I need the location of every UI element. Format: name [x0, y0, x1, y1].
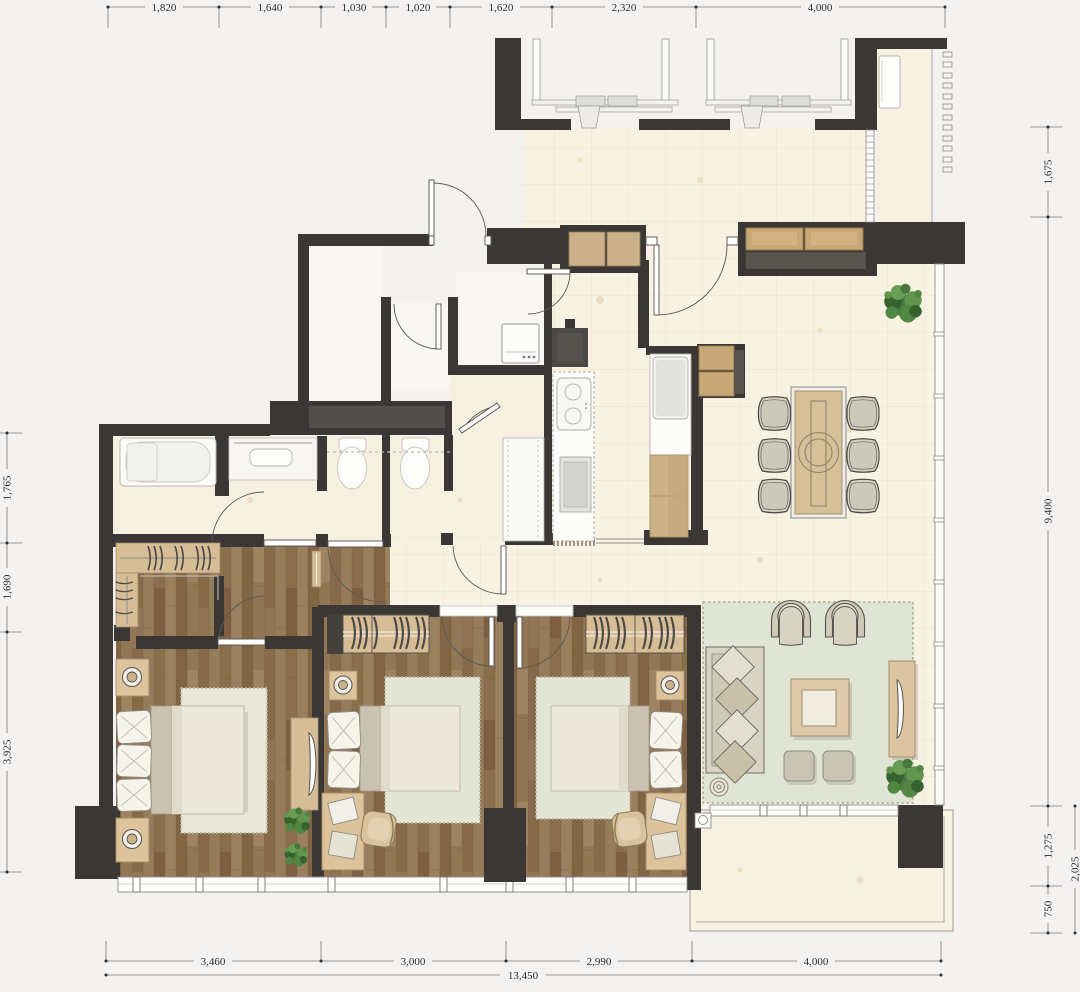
svg-text:2,990: 2,990	[587, 956, 612, 968]
svg-text:3,925: 3,925	[2, 739, 14, 764]
svg-text:3,460: 3,460	[201, 956, 226, 968]
svg-text:1,030: 1,030	[342, 2, 367, 14]
svg-text:2,025: 2,025	[1070, 856, 1080, 881]
svg-text:1,820: 1,820	[152, 2, 177, 14]
svg-text:1,020: 1,020	[406, 2, 431, 14]
svg-text:1,640: 1,640	[258, 2, 283, 14]
svg-text:1,690: 1,690	[2, 574, 14, 599]
svg-text:1,675: 1,675	[1043, 159, 1055, 184]
svg-text:9,400: 9,400	[1043, 498, 1055, 523]
svg-text:4,000: 4,000	[808, 2, 833, 14]
svg-text:2,320: 2,320	[612, 2, 637, 14]
svg-text:750: 750	[1043, 900, 1055, 917]
svg-text:1,620: 1,620	[489, 2, 514, 14]
svg-text:1,765: 1,765	[2, 475, 14, 500]
svg-text:1,275: 1,275	[1043, 833, 1055, 858]
svg-text:4,000: 4,000	[804, 956, 829, 968]
svg-text:13,450: 13,450	[508, 970, 539, 982]
svg-text:3,000: 3,000	[401, 956, 426, 968]
